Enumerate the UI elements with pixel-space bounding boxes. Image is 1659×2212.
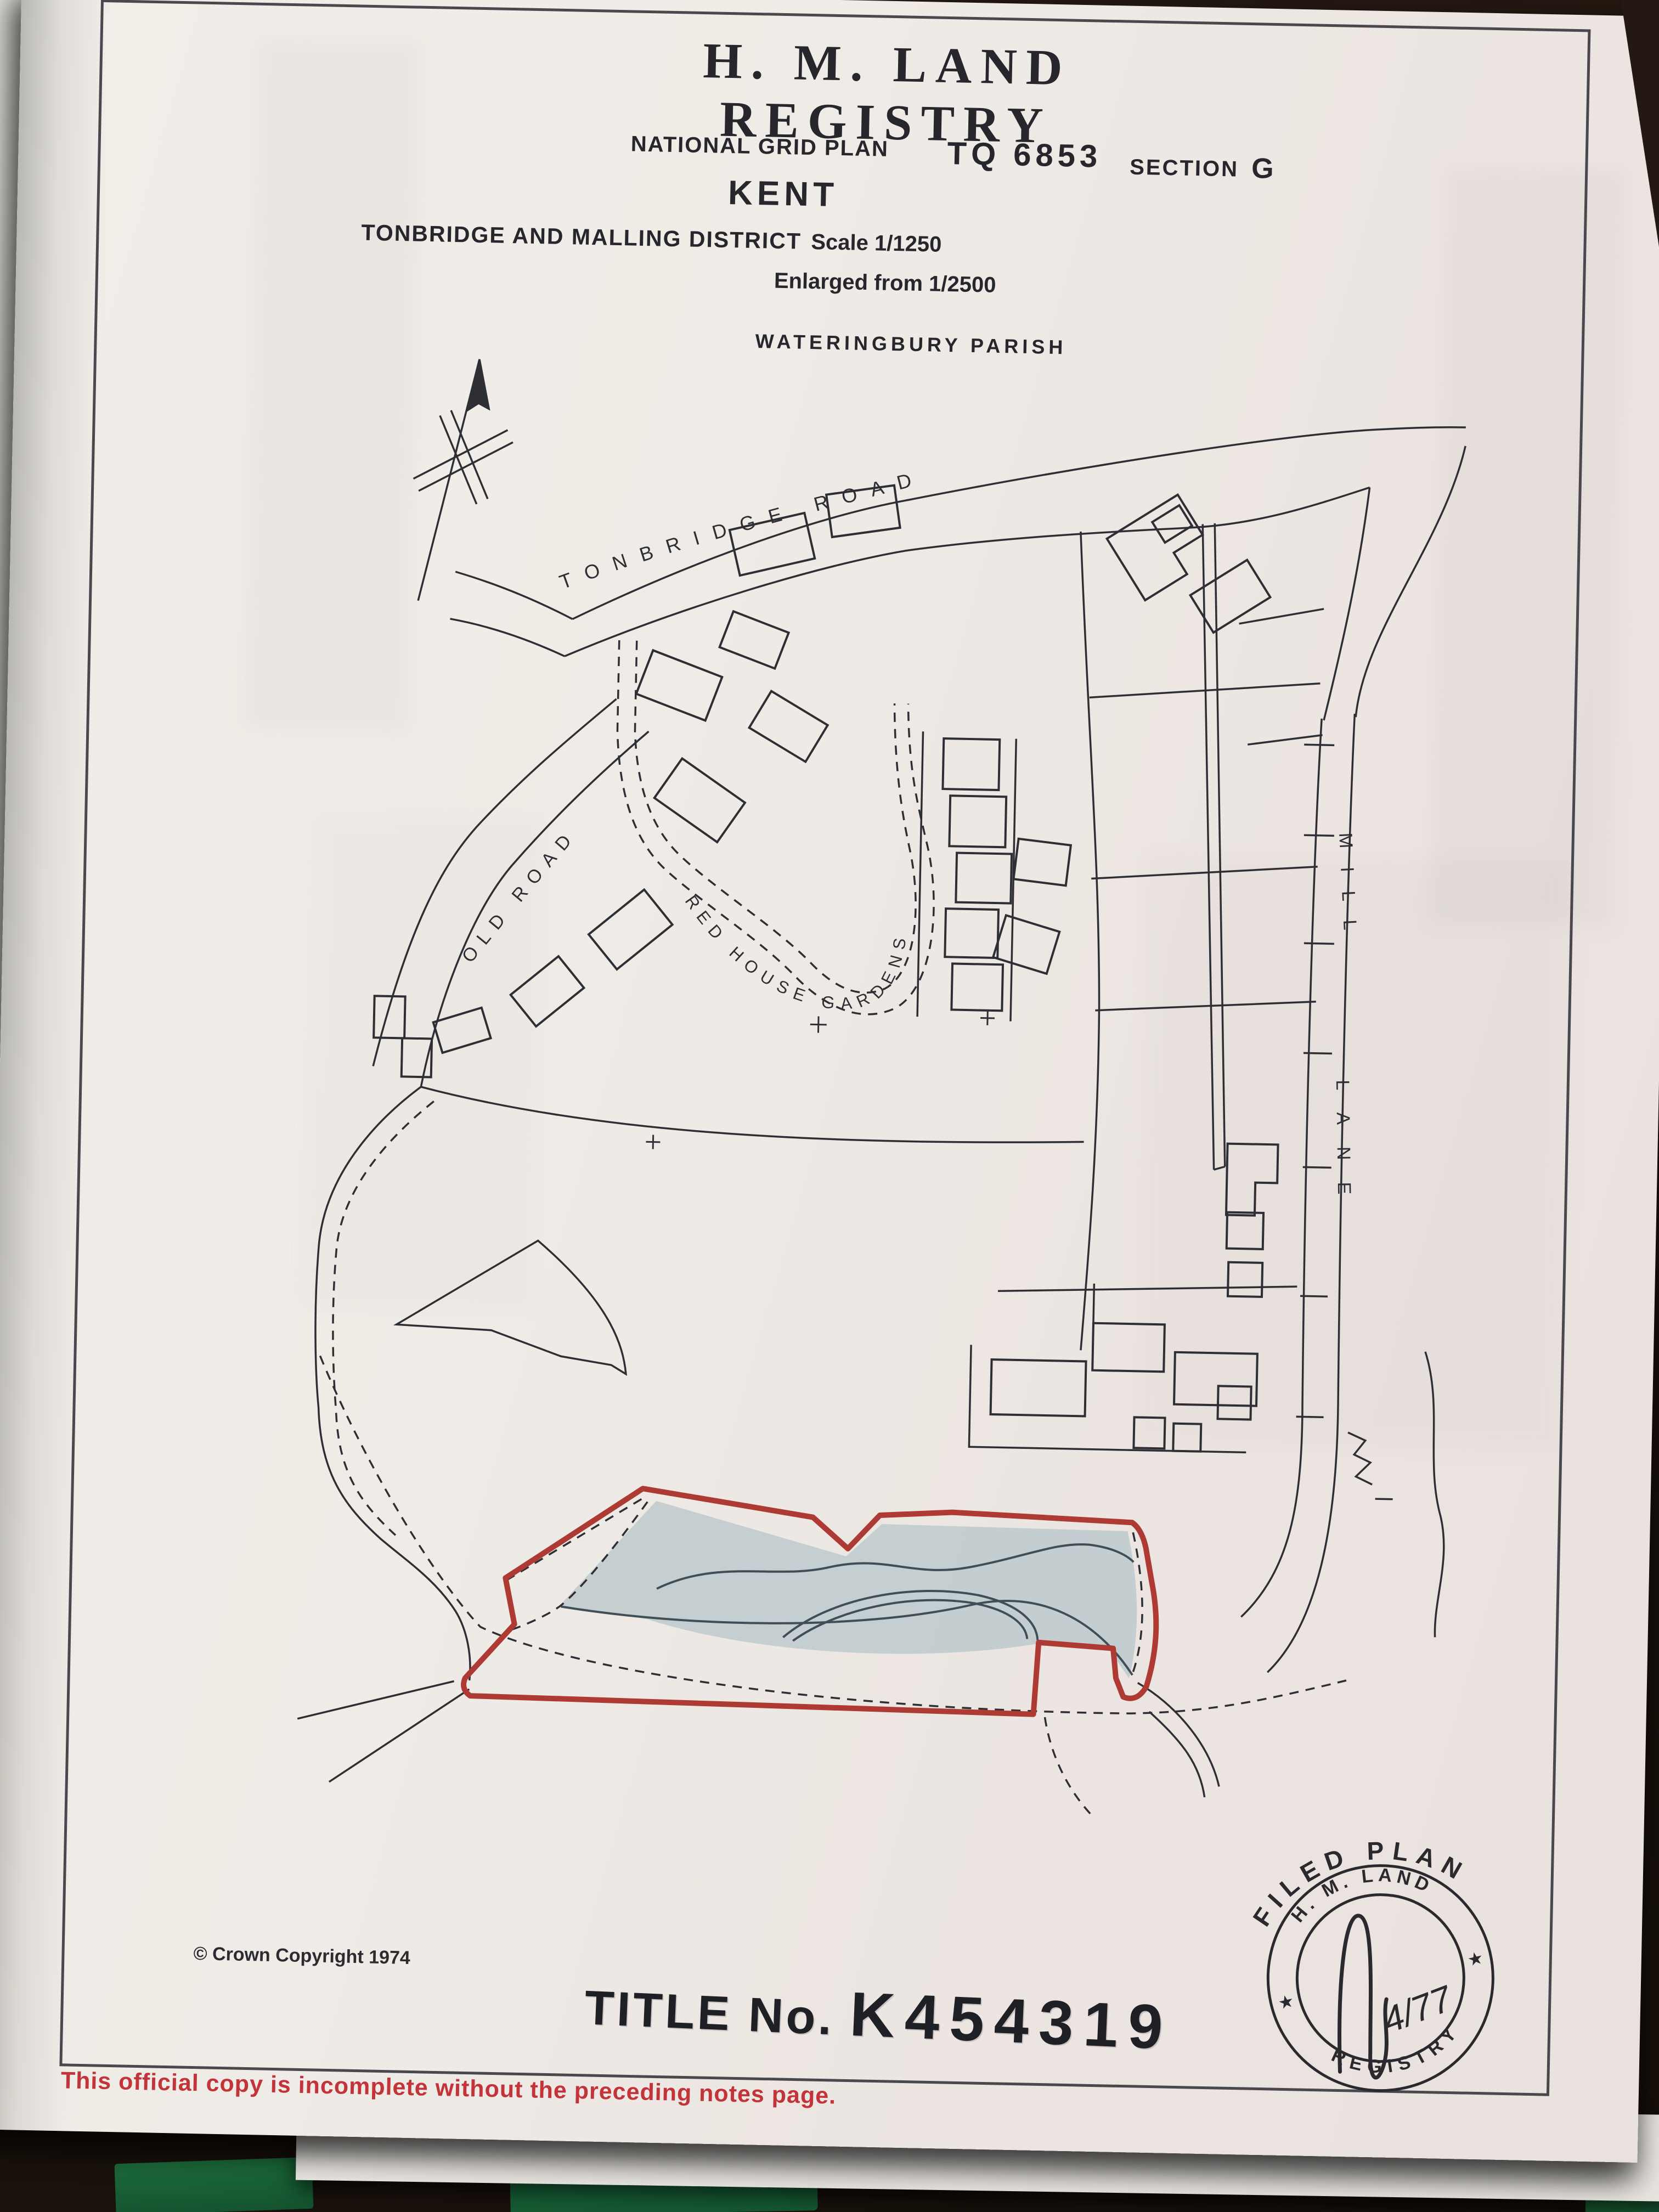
title-no-value: K454319 — [848, 1979, 1174, 2063]
cadastral-map: TONBRIDGE ROAD OLD ROAD RED HOUSE GARDEN… — [193, 339, 1485, 1878]
county-name: KENT — [727, 173, 838, 215]
section-label: SECTION — [1130, 155, 1239, 182]
stamp-star-icon: ★ — [1276, 1990, 1296, 2013]
crown-copyright: © Crown Copyright 1974 — [193, 1943, 410, 1969]
road-labels: TONBRIDGE ROAD OLD ROAD RED HOUSE GARDEN… — [453, 456, 1371, 1217]
parcel-blue-wash — [558, 1499, 1139, 1678]
label-tonbridge-road: TONBRIDGE ROAD — [556, 458, 928, 601]
registered-parcel — [313, 1356, 1352, 1720]
document-sheet: H. M. LAND REGISTRY NATIONAL GRID PLAN T… — [0, 0, 1659, 2163]
title-no-label: TITLE No. — [584, 1980, 836, 2045]
label-lane: LANE — [1332, 1080, 1355, 1216]
scale-note: Scale 1/1250 — [811, 230, 942, 257]
national-grid-label: NATIONAL GRID PLAN — [630, 132, 889, 161]
green-folder-left — [114, 2157, 313, 2212]
building-outlines — [366, 475, 1291, 1453]
grid-reference: TQ 6853 — [947, 135, 1102, 175]
photo-of-document: H. M. LAND REGISTRY NATIONAL GRID PLAN T… — [0, 0, 1659, 2212]
stamp-star-icon: ★ — [1465, 1948, 1485, 1970]
north-arrow-icon — [411, 358, 515, 603]
label-old-road: OLD ROAD — [458, 822, 582, 969]
label-mill: MILL — [1335, 832, 1361, 949]
enlarged-note: Enlarged from 1/2500 — [774, 269, 996, 298]
section-value: G — [1251, 152, 1274, 185]
